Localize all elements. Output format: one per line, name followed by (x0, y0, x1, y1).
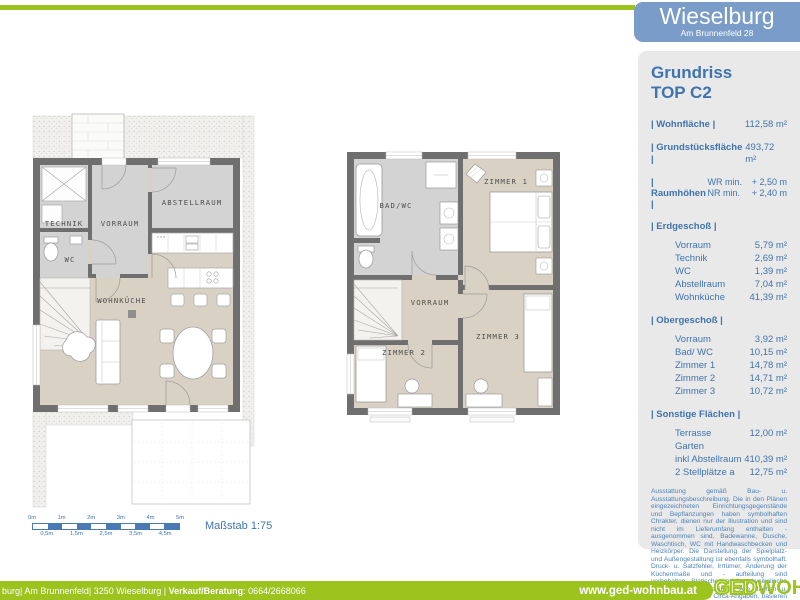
room-row: Zimmer 2 14,71 m² (675, 373, 787, 385)
room-name: Zimmer 1 (675, 360, 715, 372)
logo-ged-part: GED (714, 578, 757, 599)
summary-label: | Grundstücksfläche | (651, 142, 745, 166)
room-label-wc: WC (65, 255, 76, 264)
summary-row: | Grundstücksfläche | 493,72 m² (651, 142, 787, 166)
panel-title: Grundriss TOP C2 (651, 63, 787, 103)
room-name: Abstellraum (675, 279, 725, 291)
section-heading-sonstige: | Sonstige Flächen | (651, 409, 787, 420)
scale-top-labels: 0m1m2m3m4m5m (32, 515, 180, 522)
raumhoehen-nr: NR min. + 2,40 m (708, 188, 787, 199)
panel-title-line1: Grundriss (651, 63, 787, 83)
raumhoehen-label: | Raumhöhen | (651, 177, 708, 210)
bathtub-icon (356, 164, 382, 236)
kitchen-island-icon (168, 268, 233, 306)
scale-tick-label: 2,5m (100, 531, 113, 537)
room-row: Vorraum 3,92 m² (675, 334, 787, 346)
room-name: Zimmer 2 (675, 373, 715, 385)
toilet-icon-og (358, 246, 374, 268)
room-name: Vorraum (675, 240, 711, 252)
room-area: 2,69 m² (755, 253, 787, 265)
summary-value: 112,58 m² (745, 119, 787, 131)
rooms-erdgeschoss: Vorraum 5,79 m² Technik 2,69 m² WC 1,39 … (651, 240, 787, 304)
sofa-icon (96, 320, 120, 384)
room-label-vorraum-og: VORRAUM (411, 298, 449, 307)
scale-bottom-labels: 0,5m1,5m2,5m3,5m4,5m (32, 531, 180, 538)
room-label-bad: BAD/WC (380, 201, 413, 210)
scale-tick-label: 1m (58, 515, 66, 521)
rooms-obergeschoss: Vorraum 3,92 m² Bad/ WC 10,15 m² Zimmer … (651, 334, 787, 398)
room-area: 14,71 m² (750, 373, 788, 385)
room-name: Vorraum (675, 334, 711, 346)
room-area: 14,78 m² (750, 360, 788, 372)
raumhoehen-block: | Raumhöhen | WR min. + 2,50 m NR min. +… (651, 177, 787, 210)
room-area: 41,39 m² (750, 292, 788, 304)
room-row: Zimmer 1 14,78 m² (675, 360, 787, 372)
room-area: 12,75 m² (750, 467, 788, 479)
room-area: 3,92 m² (755, 334, 787, 346)
scale-tick-label: 1,5m (70, 531, 83, 537)
footer-address: burg| Am Brunnenfeld| 3250 Wieselburg | … (2, 586, 306, 596)
room-name: 2 Stellplätze a (675, 467, 735, 479)
room-row: Zimmer 3 10,72 m² (675, 386, 787, 398)
project-address: Am Brunnenfeld 28 (634, 29, 800, 38)
terrace (132, 420, 250, 504)
scale-tick-label: 4m (146, 515, 154, 521)
scale-tick-label: 2m (87, 515, 95, 521)
scale-caption: Maßstab 1:75 (205, 520, 272, 532)
room-row: Terrasse 12,00 m² (675, 428, 787, 440)
floorplan-obergeschoss: BAD/WC ZIMMER 1 VORRAUM ZIMMER 2 ZIMMER … (340, 142, 567, 427)
column (128, 310, 136, 318)
room-label-vorraum-eg: VORRAUM (101, 219, 139, 228)
room-name: Garten (675, 441, 704, 453)
room-label-wohnkueche: WOHNKÜCHE (97, 296, 146, 305)
scale-tick-label: 0,5m (40, 531, 53, 537)
room-name: Bad/ WC (675, 347, 713, 359)
ged-wohnbau-logo: GEDWOHNBAU (714, 578, 800, 599)
room-row: WC 1,39 m² (675, 266, 787, 278)
room-row: Garten (675, 441, 787, 453)
staircase-og (354, 280, 402, 340)
rooms-sonstige: Terrasse 12,00 m² Garten inkl Abstellrau… (651, 428, 787, 479)
room-row: inkl Abstellraum 410,39 m² (675, 454, 787, 466)
room-label-zimmer1: ZIMMER 1 (484, 177, 528, 186)
room-name: Terrasse (675, 428, 711, 440)
room-label-abstellraum: ABSTELLRAUM (162, 198, 222, 207)
footer-bar: burg| Am Brunnenfeld| 3250 Wieselburg | … (0, 581, 713, 600)
area-summary: | Wohnfläche | 112,58 m² | Grundstücksfl… (651, 119, 787, 166)
floorplan-sheet: Wieselburg Am Brunnenfeld 28 (0, 0, 800, 600)
room-area: 1,39 m² (755, 266, 787, 278)
logo-wohnbau-part: WOHNBAU (757, 578, 800, 599)
room-name: inkl Abstellraum (675, 454, 742, 466)
room-row: Bad/ WC 10,15 m² (675, 347, 787, 359)
info-panel: Grundriss TOP C2 | Wohnfläche | 112,58 m… (638, 51, 800, 549)
scale-tick-label: 3,5m (129, 531, 142, 537)
raumhoehen-wr: WR min. + 2,50 m (708, 177, 787, 188)
scale-bar: 0m1m2m3m4m5m 0,5m1,5m2,5m3,5m4,5m (32, 515, 180, 538)
project-header: Wieselburg Am Brunnenfeld 28 (634, 2, 800, 42)
room-name: Wohnküche (675, 292, 725, 304)
website-text: www.ged-wohnbau.at (579, 585, 697, 597)
summary-row: | Wohnfläche | 112,58 m² (651, 119, 787, 131)
room-label-zimmer3: ZIMMER 3 (476, 332, 520, 341)
room-area: 12,00 m² (750, 428, 788, 440)
room-label-technik: TECHNIK (45, 219, 83, 228)
scale-strip (32, 523, 180, 530)
summary-value: 493,72 m² (745, 142, 787, 166)
scale-tick-label: 3m (117, 515, 125, 521)
room-row: Abstellraum 7,04 m² (675, 279, 787, 291)
kitchen-counter-icon (152, 233, 233, 253)
floorplan-erdgeschoss: TECHNIK VORRAUM ABSTELLRAUM WC WOHNKÜCHE (18, 110, 266, 512)
room-row: Vorraum 5,79 m² (675, 240, 787, 252)
scale-tick-label: 5m (176, 515, 184, 521)
room-row: 2 Stellplätze a 12,75 m² (675, 467, 787, 479)
chimney (72, 114, 124, 160)
section-heading-erdgeschoss: | Erdgeschoß | (651, 221, 787, 232)
floor-abstellraum (152, 165, 233, 228)
footer-contact-label: Verkauf/Beratung (169, 586, 244, 596)
room-row: Technik 2,69 m² (675, 253, 787, 265)
room-name: Technik (675, 253, 707, 265)
top-accent-line (0, 5, 635, 10)
room-area: 10,15 m² (750, 347, 788, 359)
scale-tick-label: 0m (28, 515, 36, 521)
room-label-zimmer2: ZIMMER 2 (382, 348, 426, 357)
scale-tick-label: 4,5m (159, 531, 172, 537)
project-title: Wieselburg (634, 4, 800, 29)
panel-title-line2: TOP C2 (651, 83, 787, 103)
room-area: 5,79 m² (755, 240, 787, 252)
room-name: Zimmer 3 (675, 386, 715, 398)
room-area: 7,04 m² (755, 279, 787, 291)
section-heading-obergeschoss: | Obergeschoß | (651, 315, 787, 326)
summary-label: | Wohnfläche | (651, 119, 715, 131)
room-area: 410,39 m² (744, 454, 787, 466)
room-name: WC (675, 266, 691, 278)
room-area: 10,72 m² (750, 386, 788, 398)
room-row: Wohnküche 41,39 m² (675, 292, 787, 304)
